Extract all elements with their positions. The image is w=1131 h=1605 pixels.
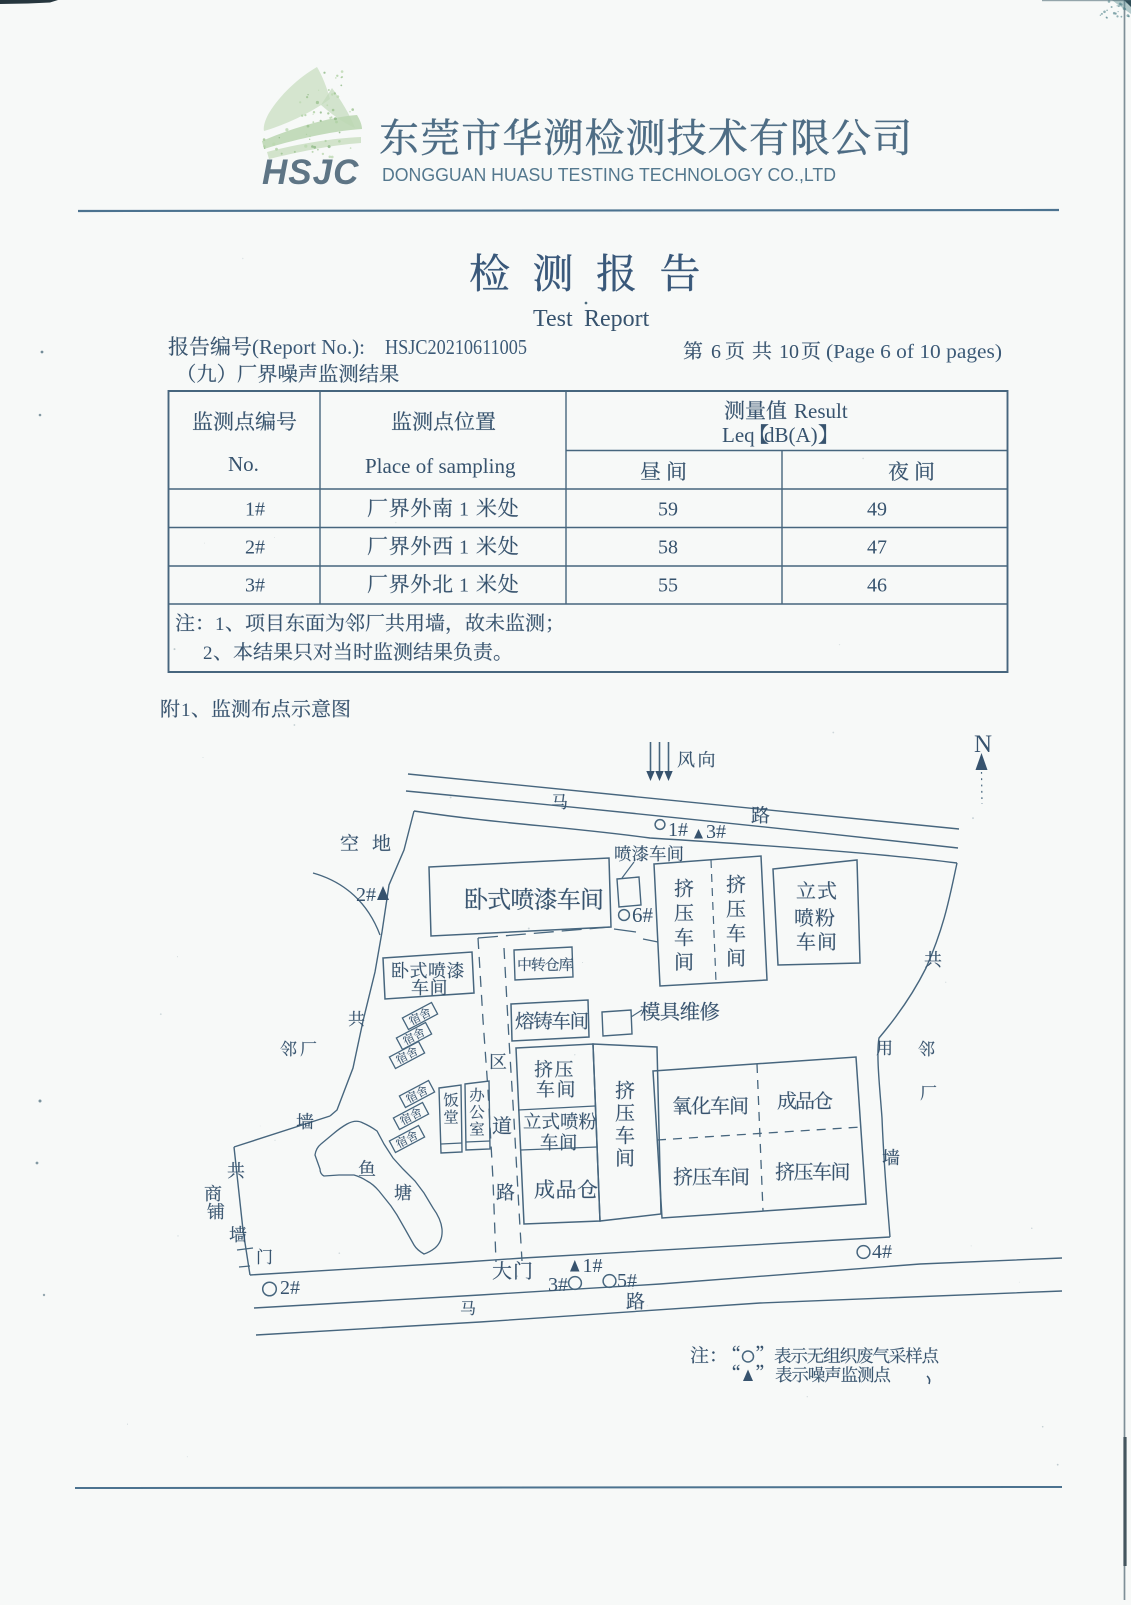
svg-text:2#: 2#	[245, 537, 265, 559]
svg-text:Place of sampling: Place of sampling	[365, 454, 516, 478]
svg-text:47: 47	[867, 537, 887, 559]
svg-text:1: 1	[459, 575, 469, 597]
svg-text:2: 2	[203, 643, 213, 664]
svg-text:1#: 1#	[668, 819, 688, 841]
svg-text:Leq: Leq	[722, 423, 755, 447]
svg-text:1#: 1#	[583, 1255, 603, 1277]
svg-text:(Page 6 of 10 pages): (Page 6 of 10 pages)	[826, 341, 1002, 363]
svg-text:2#: 2#	[280, 1277, 300, 1299]
svg-text:N: N	[974, 731, 992, 758]
svg-text:4#: 4#	[872, 1241, 892, 1263]
svg-text:58: 58	[658, 537, 678, 559]
svg-text:3#: 3#	[706, 821, 726, 843]
svg-text:1: 1	[215, 614, 225, 635]
svg-text:No.: No.	[228, 452, 259, 476]
svg-text:49: 49	[867, 499, 887, 521]
svg-text:10: 10	[779, 341, 799, 363]
svg-text:1: 1	[459, 537, 469, 559]
svg-text:1: 1	[181, 700, 191, 721]
svg-text:46: 46	[867, 575, 887, 597]
svg-text:55: 55	[658, 575, 678, 597]
svg-text:(Report No.):: (Report No.):	[252, 335, 365, 359]
svg-text:6#: 6#	[632, 903, 654, 927]
svg-text:Result: Result	[794, 399, 848, 423]
svg-text:5#: 5#	[617, 1270, 637, 1292]
svg-text:dB(A): dB(A)	[764, 423, 818, 447]
svg-text:3#: 3#	[548, 1274, 568, 1296]
svg-text:59: 59	[658, 499, 678, 521]
svg-text:HSJC20210611005: HSJC20210611005	[385, 335, 527, 359]
svg-text:Report: Report	[584, 306, 650, 332]
svg-text:3#: 3#	[245, 575, 265, 597]
svg-text:2#: 2#	[356, 884, 376, 906]
svg-text:1: 1	[459, 499, 469, 521]
svg-text:DONGGUAN HUASU TESTING TECHNOL: DONGGUAN HUASU TESTING TECHNOLOGY CO.,LT…	[382, 165, 836, 185]
svg-text:6: 6	[711, 341, 721, 363]
svg-text:Test: Test	[533, 306, 573, 332]
svg-text:HSJC: HSJC	[262, 153, 359, 192]
svg-text:1#: 1#	[245, 499, 265, 521]
